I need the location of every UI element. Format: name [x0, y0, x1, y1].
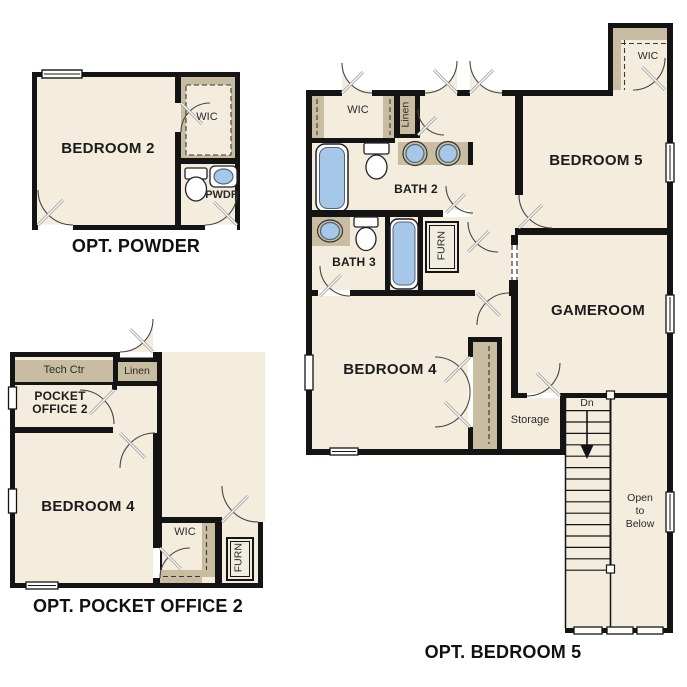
room-label-bedroom4: BEDROOM 4 — [320, 362, 460, 378]
room-label-wic-bedroom5: WIC — [628, 51, 668, 62]
room-label-bath3: BATH 3 — [319, 256, 389, 269]
stairs-dn-label: Dn — [572, 398, 602, 409]
room-label-furn-bedroom5: FURN — [436, 226, 447, 266]
room-label-wic-hall: WIC — [338, 105, 378, 117]
room-label-bath2: BATH 2 — [381, 183, 451, 196]
floorplan-sheet: BEDROOM 2 WIC PWDR OPT. POWDER Tech Ctr … — [0, 0, 687, 687]
room-label-pocket-office: POCKETOFFICE 2 — [17, 390, 103, 416]
room-label-wic-powder: WIC — [187, 112, 227, 124]
room-label-linen-pocket: Linen — [112, 366, 162, 377]
room-label-pwdr: PWDR — [200, 190, 244, 202]
room-label-storage: Storage — [495, 415, 565, 427]
plan-caption-pocket-office: OPT. POCKET OFFICE 2 — [0, 597, 276, 616]
room-label-linen-bedroom5: Linen — [400, 95, 411, 135]
open-to-below-line1: Open — [627, 492, 653, 504]
room-label-bedroom2: BEDROOM 2 — [40, 141, 176, 157]
room-label-gameroom: GAMEROOM — [523, 303, 673, 319]
room-label-wic-pocket: WIC — [165, 527, 205, 539]
pocket-office-line1: POCKET — [34, 389, 85, 403]
pocket-office-line2: OFFICE 2 — [32, 402, 88, 416]
open-to-below-line3: Below — [626, 518, 655, 530]
floorplan-drawing — [0, 0, 687, 687]
room-label-tech-ctr: Tech Ctr — [24, 365, 104, 377]
room-label-bedroom4-pocket: BEDROOM 4 — [20, 499, 156, 515]
room-label-furn-pocket: FURN — [233, 538, 244, 578]
plan-caption-powder: OPT. POWDER — [32, 237, 240, 256]
plan-caption-bedroom5: OPT. BEDROOM 5 — [333, 643, 673, 662]
open-to-below-line2: to — [636, 505, 645, 517]
room-label-bedroom5: BEDROOM 5 — [526, 153, 666, 169]
pocket-office-plan-graphics — [9, 319, 266, 589]
open-to-below-label: OpentoBelow — [610, 492, 670, 531]
